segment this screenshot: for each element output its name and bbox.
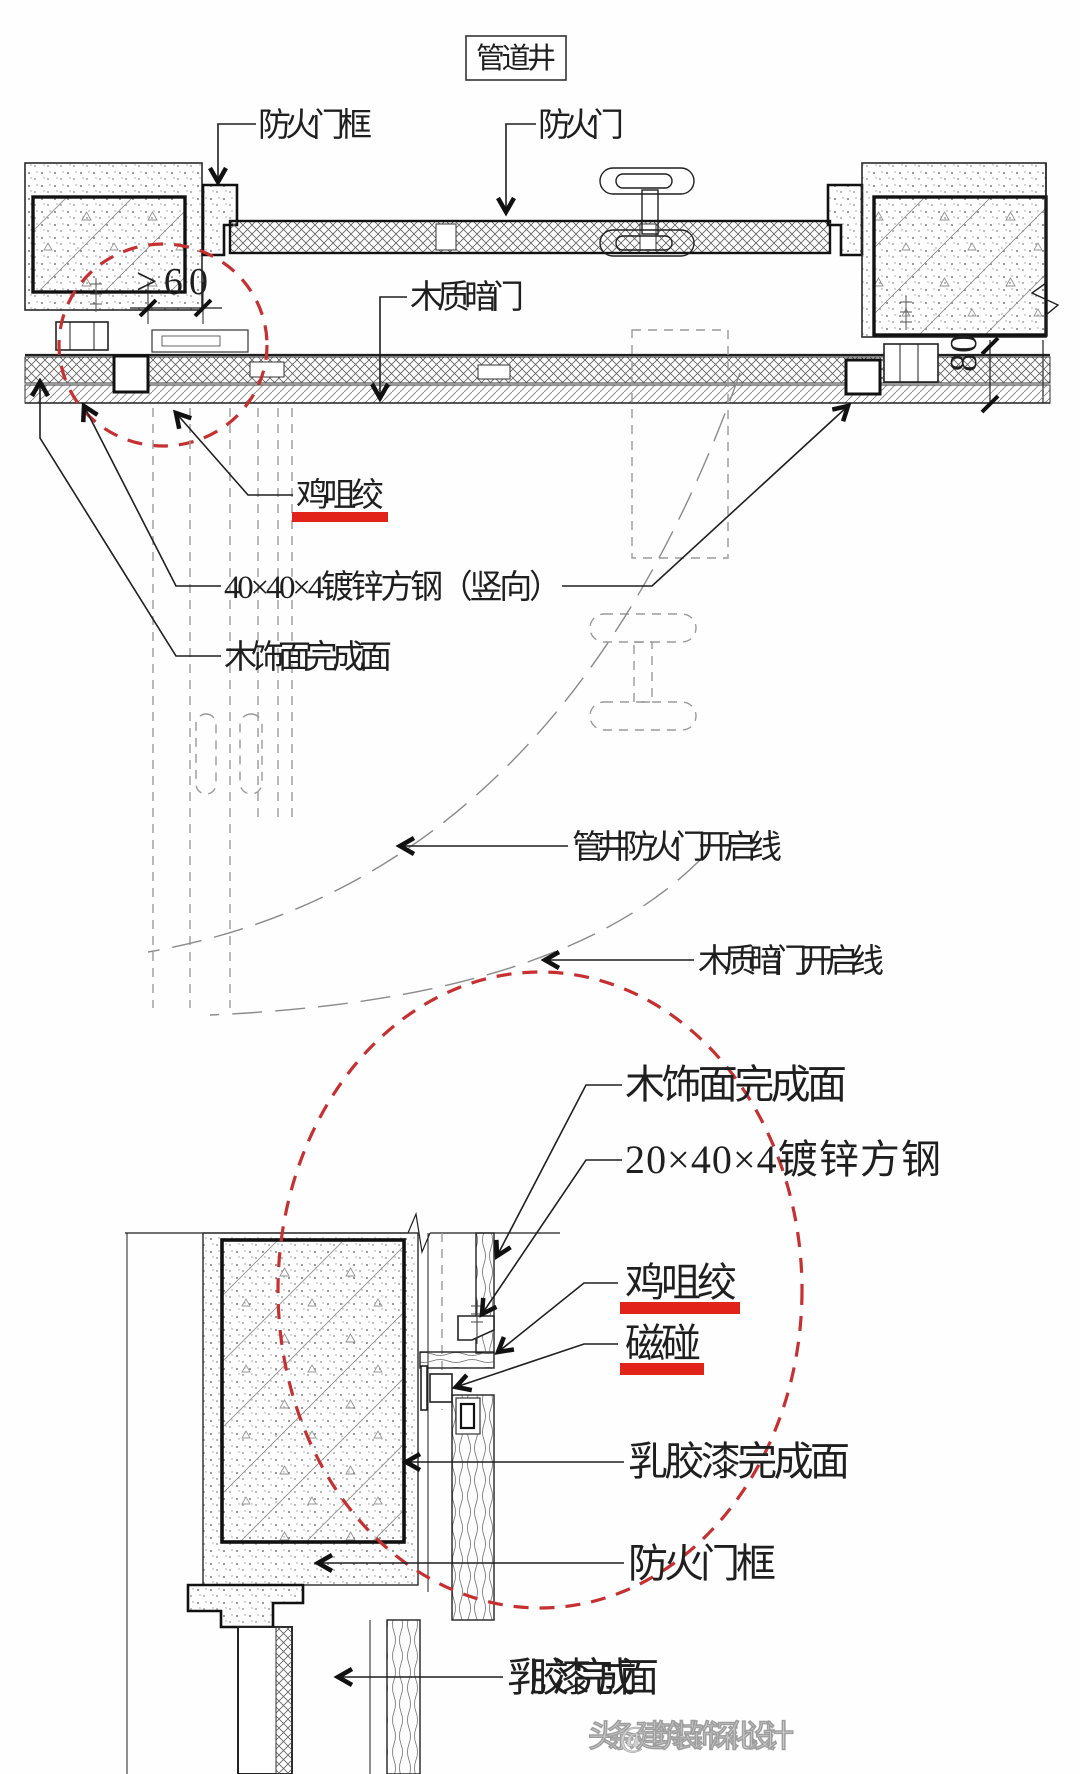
hidden-door-leaf-plan bbox=[387, 1620, 420, 1774]
label-fire-door-swing-line: 管井防火门开启线 bbox=[572, 829, 782, 866]
hidden-door-swing-arc bbox=[210, 860, 700, 1015]
ghost-door-pull bbox=[240, 714, 262, 794]
right-door-jamb bbox=[828, 185, 862, 255]
detail-drawing: >60 80 管道井 bbox=[0, 0, 1080, 1774]
steel-tube-section-left bbox=[114, 356, 148, 392]
label-fire-door-frame: 防火门框 bbox=[628, 1541, 776, 1586]
label-fire-door-frame: 防火门框 bbox=[258, 107, 372, 144]
concrete-column bbox=[222, 1240, 404, 1542]
fire-door-frame-plan bbox=[188, 1585, 303, 1627]
page-title: 管道井 bbox=[476, 42, 556, 75]
red-underline bbox=[620, 1363, 704, 1375]
right-wall-concrete bbox=[874, 197, 1046, 335]
label-latex-paint-finish-1: 乳胶漆完成面 bbox=[628, 1439, 850, 1484]
label-latex-paint-finish-2: 乳胶漆完成面 bbox=[507, 1655, 659, 1700]
dimension-min60: >60 bbox=[130, 261, 222, 324]
ghost-door-closer bbox=[590, 702, 696, 730]
red-underline bbox=[292, 512, 388, 522]
ghost-door-closer bbox=[634, 642, 652, 702]
wood-return-piece bbox=[420, 1352, 494, 1368]
label-chicken-beak-hinge: 鸡咀绞 bbox=[625, 1260, 737, 1305]
drawing-canvas: >60 80 管道井 bbox=[0, 0, 1080, 1774]
label-hidden-door-swing-line: 木质暗门开启线 bbox=[698, 943, 884, 980]
ghost-door-closer bbox=[590, 614, 696, 642]
label-steel-tube-vertical: 40×40×4镀锌方钢（竖向） bbox=[224, 569, 562, 606]
label-wood-veneer-finish: 木饰面完成面 bbox=[625, 1062, 847, 1107]
dim-min60-text: >60 bbox=[136, 261, 208, 303]
steel-tube-section-right bbox=[846, 360, 880, 394]
dim-80-text: 80 bbox=[943, 334, 985, 372]
red-underline bbox=[620, 1302, 740, 1314]
label-wood-veneer-finish: 木饰面完成面 bbox=[224, 639, 392, 676]
label-chicken-beak-hinge: 鸡咀绞 bbox=[296, 477, 384, 514]
label-fire-door: 防火门 bbox=[538, 107, 624, 144]
fire-door-panel bbox=[230, 221, 830, 253]
label-wooden-hidden-door: 木质暗门 bbox=[410, 279, 524, 316]
label-magnetic-catch: 磁碰 bbox=[625, 1321, 701, 1366]
magnetic-catch bbox=[421, 1366, 452, 1410]
watermark: 头条 @建筑装饰深化设计 bbox=[588, 1719, 794, 1754]
ghost-door-pull bbox=[196, 714, 216, 794]
label-steel-tube: 20×40×4镀锌方钢 bbox=[625, 1137, 941, 1182]
